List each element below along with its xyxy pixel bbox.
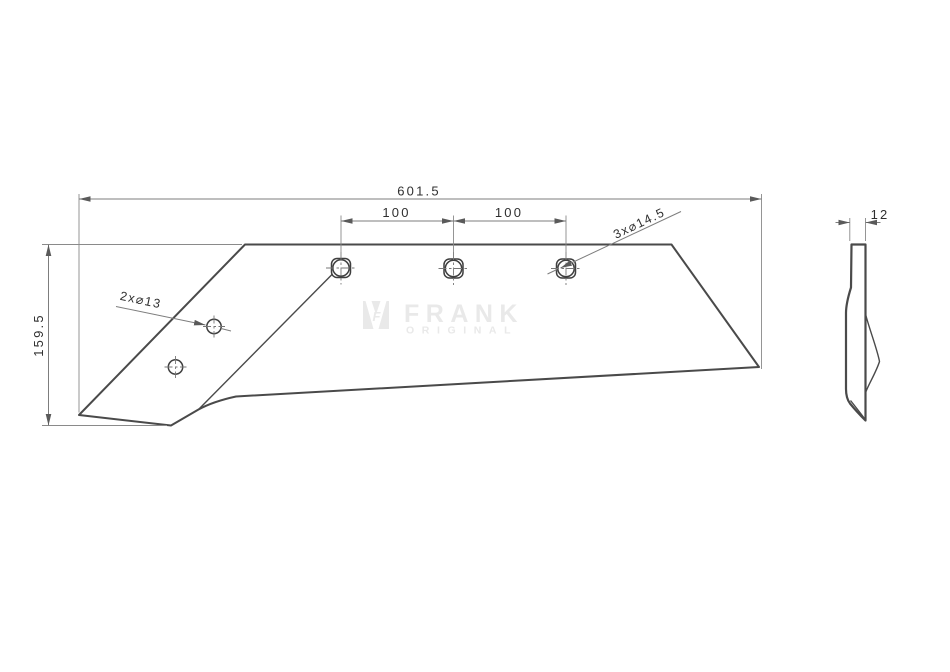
small-hole-1 [203,316,225,338]
leader-tail [221,329,231,332]
dim-thickness-value: 12 [871,207,890,222]
side-view: 12 [836,207,890,421]
small-hole-centerlines [165,356,187,378]
leader-line [116,307,206,326]
label-small-holes: 2x⌀13 [116,289,231,331]
watermark-subtitle-text: ORIGINAL [406,325,518,337]
label-large-holes: 3x⌀14.5 [548,205,682,274]
drawing-sheet: F FRANK ORIGINAL [0,0,950,672]
bolt-hole-centerlines [439,252,469,285]
dim-overall-width-value: 601.5 [397,184,441,199]
side-profile-curve [866,314,880,392]
bolt-hole-3 [551,252,581,285]
dim-hole-spacing-left-value: 100 [382,205,410,220]
dim-thickness: 12 [836,207,890,241]
dim-hole-spacing-right-value: 100 [495,205,523,220]
drawing-canvas: F FRANK ORIGINAL [0,0,950,672]
bolt-hole-2 [439,252,469,285]
watermark-monogram: F [373,309,382,324]
extension-lines [850,218,866,241]
small-hole-centerlines [203,316,225,338]
bolt-hole-1 [326,252,356,285]
leader-tail [548,270,558,275]
dim-height-value: 159.5 [31,313,46,357]
watermark-logo: F FRANK ORIGINAL [363,300,524,337]
label-large-holes-text: 3x⌀14.5 [611,205,667,242]
small-hole-2 [165,356,187,378]
blade-inner-edge [199,274,333,410]
bolt-hole-centerlines [551,252,581,285]
bolt-hole-centerlines [326,252,356,285]
side-profile-outline [846,245,866,421]
side-profile-tip-edge [851,401,865,419]
front-view: 601.5 100 100 159.5 2x⌀13 3x⌀14.5 [31,184,762,426]
